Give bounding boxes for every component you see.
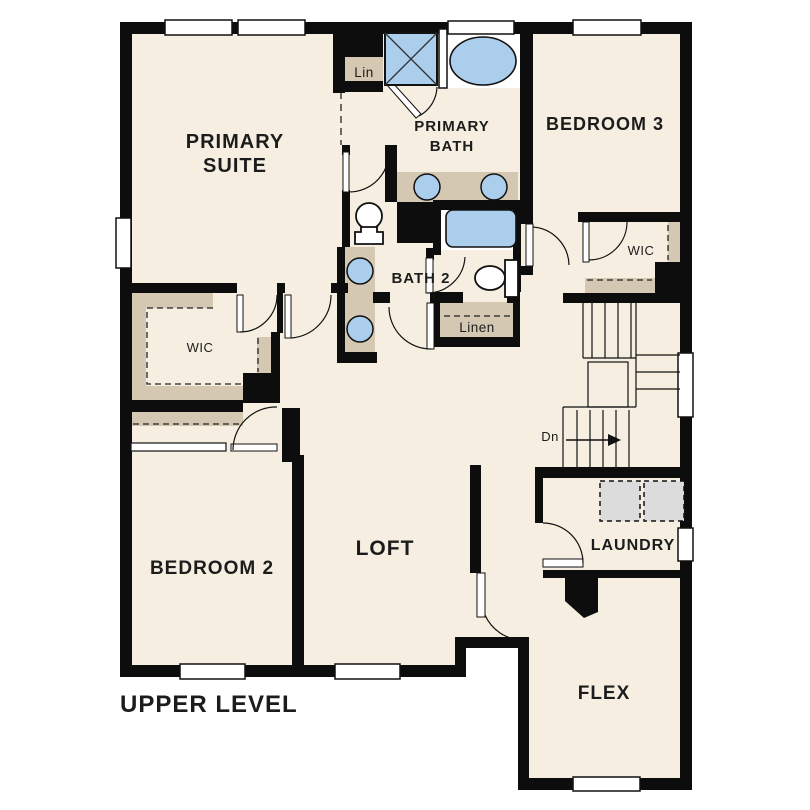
window <box>238 20 305 35</box>
washer <box>600 481 640 521</box>
sink <box>481 174 507 200</box>
floor-plan: PRIMARY SUITE PRIMARY BATH BEDROOM 3 WIC… <box>0 0 810 810</box>
window <box>678 353 693 417</box>
sink <box>414 174 440 200</box>
door-leaf <box>237 295 243 332</box>
room-label-primary-bath-1: PRIMARY <box>414 118 490 135</box>
soaking-tub <box>450 37 516 85</box>
door-leaf <box>427 303 434 349</box>
dryer <box>644 481 684 521</box>
wic-bedroom3-shelf-right <box>668 222 681 262</box>
window <box>448 21 514 34</box>
window <box>180 664 245 679</box>
door-leaf <box>343 152 349 192</box>
door-leaf <box>543 559 583 567</box>
door-leaf <box>477 573 485 617</box>
hall-niche-shelf <box>257 337 271 373</box>
window <box>165 20 232 35</box>
room-label-linen: Linen <box>459 320 495 335</box>
bedroom2-closet-front <box>131 443 226 451</box>
room-label-loft: LOFT <box>356 537 415 560</box>
room-label-wic-primary: WIC <box>187 340 214 355</box>
room-label-flex: FLEX <box>578 683 631 704</box>
room-label-primary-suite-1: PRIMARY <box>186 131 284 153</box>
door-leaf <box>583 222 589 262</box>
floor-plan-page: PRIMARY SUITE PRIMARY BATH BEDROOM 3 WIC… <box>0 0 810 810</box>
room-label-wic-bedroom3: WIC <box>628 243 655 258</box>
door-leaf <box>526 224 533 266</box>
stairs-down-label: Dn <box>541 429 559 444</box>
bathtub <box>446 210 516 247</box>
room-label-lin: Lin <box>354 65 374 80</box>
window <box>678 528 693 561</box>
door-leaf <box>231 444 277 451</box>
toilet <box>356 203 382 229</box>
room-label-primary-suite-2: SUITE <box>203 155 267 177</box>
door-leaf <box>285 295 291 338</box>
wic-primary-shelf-left <box>131 293 146 400</box>
room-label-laundry: LAUNDRY <box>591 537 676 554</box>
window <box>573 777 640 791</box>
shower-glass-divider <box>439 29 447 88</box>
room-label-primary-bath-2: BATH <box>430 138 475 155</box>
room-label-bedroom-3: BEDROOM 3 <box>546 114 664 134</box>
wic-primary-shelf-bottom <box>131 386 243 400</box>
window <box>335 664 400 679</box>
page-title: UPPER LEVEL <box>120 691 298 718</box>
window <box>573 20 641 35</box>
room-label-bedroom-2: BEDROOM 2 <box>150 558 274 579</box>
sink <box>347 316 373 342</box>
room-label-bath-2: BATH 2 <box>391 270 450 287</box>
sink <box>347 258 373 284</box>
toilet <box>475 266 505 290</box>
toilet-tank <box>505 260 518 297</box>
window <box>116 218 131 268</box>
